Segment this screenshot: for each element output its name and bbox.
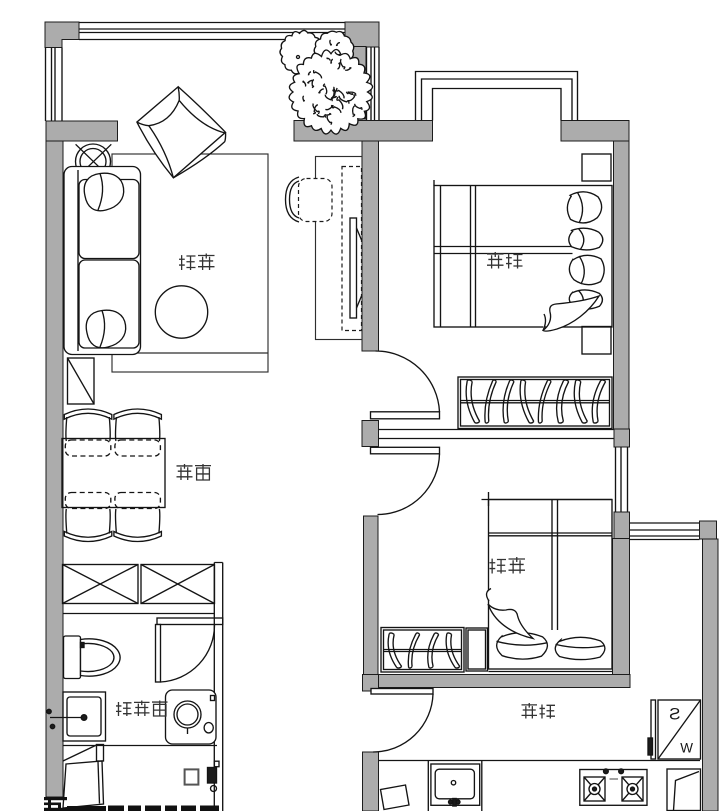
- svg-text:S: S: [669, 705, 680, 724]
- svg-text:W: W: [680, 741, 693, 756]
